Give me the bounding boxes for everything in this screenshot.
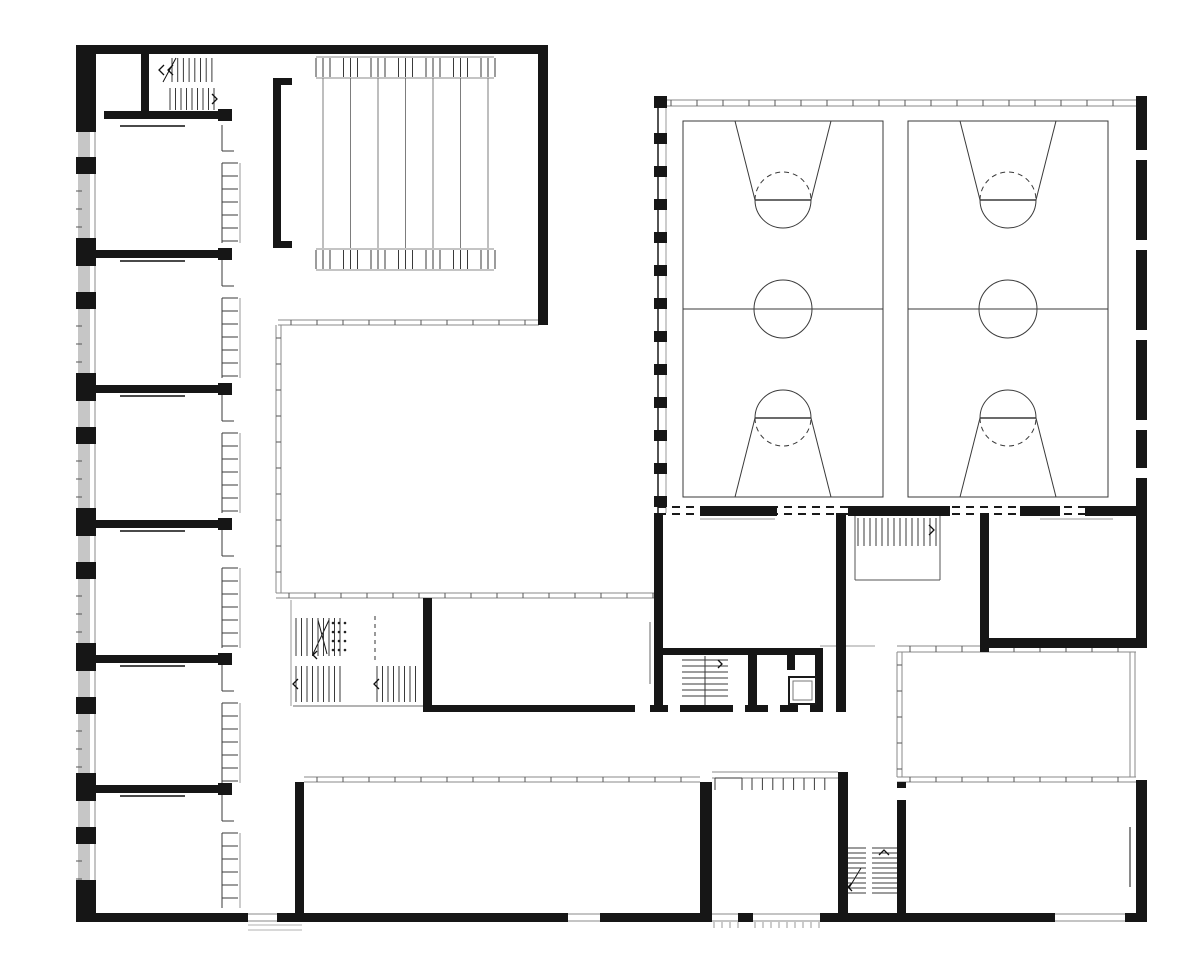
top-wall [88, 45, 546, 54]
door-post [218, 653, 232, 665]
gym-pier [654, 397, 667, 408]
gym-pier [654, 199, 667, 210]
interior-wall [980, 513, 989, 652]
guide-dot [332, 631, 335, 634]
guide-dot [344, 622, 347, 625]
window-strip [78, 401, 90, 427]
classroom-divider [88, 250, 218, 258]
interior-wall [295, 782, 304, 922]
bottom-wall [600, 913, 712, 922]
interior-wall [897, 800, 906, 922]
interior-wall [787, 655, 795, 670]
window-strip [78, 536, 90, 562]
canvas-background [0, 0, 1200, 965]
interior-wall [654, 513, 663, 712]
corridor-wall [780, 705, 798, 712]
partition-wall [700, 506, 777, 516]
partition-wall [848, 506, 950, 516]
guide-dot [344, 640, 347, 643]
interior-wall [748, 655, 757, 712]
gym-pier [654, 463, 667, 474]
guide-dot [332, 622, 335, 625]
gym-pier [654, 232, 667, 243]
interior-wall [836, 513, 846, 712]
window-strip [78, 801, 90, 827]
stairwell-wall [104, 111, 232, 119]
classroom-divider [88, 385, 218, 393]
gym-pier [654, 133, 667, 144]
bottom-wall [820, 913, 1055, 922]
gym-corner [654, 96, 667, 108]
door-post [218, 383, 232, 395]
window-strip [78, 174, 90, 238]
west-wall-pier [76, 827, 96, 844]
wall-slit [1134, 240, 1149, 250]
gym-pier [654, 265, 667, 276]
wall-slit [1134, 150, 1149, 160]
west-wall-pier [76, 157, 96, 174]
gym-pier [654, 430, 667, 441]
wall-slit [1134, 468, 1149, 478]
guide-dot [344, 649, 347, 652]
window-strip [78, 844, 90, 880]
classroom-divider [88, 785, 218, 793]
door-post [218, 783, 232, 795]
window-strip [78, 444, 90, 508]
door-post [218, 109, 232, 121]
guide-dot [344, 631, 347, 634]
corridor-wall [745, 705, 768, 712]
gym-pier [654, 331, 667, 342]
tribune-bracket [273, 78, 292, 85]
bottom-wall [738, 913, 753, 922]
gym-pier [654, 496, 667, 507]
guide-dot [338, 649, 341, 652]
window-strip [78, 714, 90, 773]
corridor-wall [680, 705, 733, 712]
gym-pier [654, 298, 667, 309]
corridor-wall [810, 705, 823, 712]
classroom-divider [88, 655, 218, 663]
interior-wall [423, 598, 432, 712]
wall-slit [1134, 330, 1149, 340]
interior-wall [980, 638, 1140, 648]
classroom-divider [88, 520, 218, 528]
interior-wall [838, 772, 848, 922]
guide-dot [338, 622, 341, 625]
bottom-wall [1125, 913, 1147, 922]
partition-wall [1085, 506, 1136, 516]
stairwell-wall [141, 45, 149, 118]
guide-dot [338, 640, 341, 643]
auditorium-east-wall [538, 45, 548, 325]
floor-plan-page [0, 0, 1200, 965]
corridor-wall [423, 705, 635, 712]
tribune-bracket [273, 241, 292, 248]
door-post [218, 248, 232, 260]
west-wall-pier [76, 562, 96, 579]
interior-wall [662, 648, 823, 655]
window-strip [78, 266, 90, 292]
east-wall-lower [1136, 780, 1147, 922]
wall-slit [1134, 420, 1149, 430]
guide-dot [338, 631, 341, 634]
window-strip [78, 131, 90, 157]
west-wall-pier [76, 292, 96, 309]
floor-plan-drawing [0, 0, 1200, 965]
partition-wall [1020, 506, 1060, 516]
interior-wall [897, 782, 906, 788]
guide-dot [332, 649, 335, 652]
window-strip [78, 671, 90, 697]
gym-pier [654, 166, 667, 177]
interior-wall [700, 782, 712, 922]
bottom-wall [88, 913, 248, 922]
gym-east-wall [1136, 96, 1147, 648]
west-wall-pier [76, 697, 96, 714]
west-wall-pier [76, 427, 96, 444]
bottom-wall [277, 913, 568, 922]
guide-dot [332, 640, 335, 643]
corridor-wall [650, 705, 668, 712]
west-wall-pier [76, 45, 96, 132]
gym-pier [654, 364, 667, 375]
door-post [218, 518, 232, 530]
window-strip [78, 579, 90, 643]
window-strip [78, 309, 90, 373]
tribune-bracket [273, 78, 281, 248]
